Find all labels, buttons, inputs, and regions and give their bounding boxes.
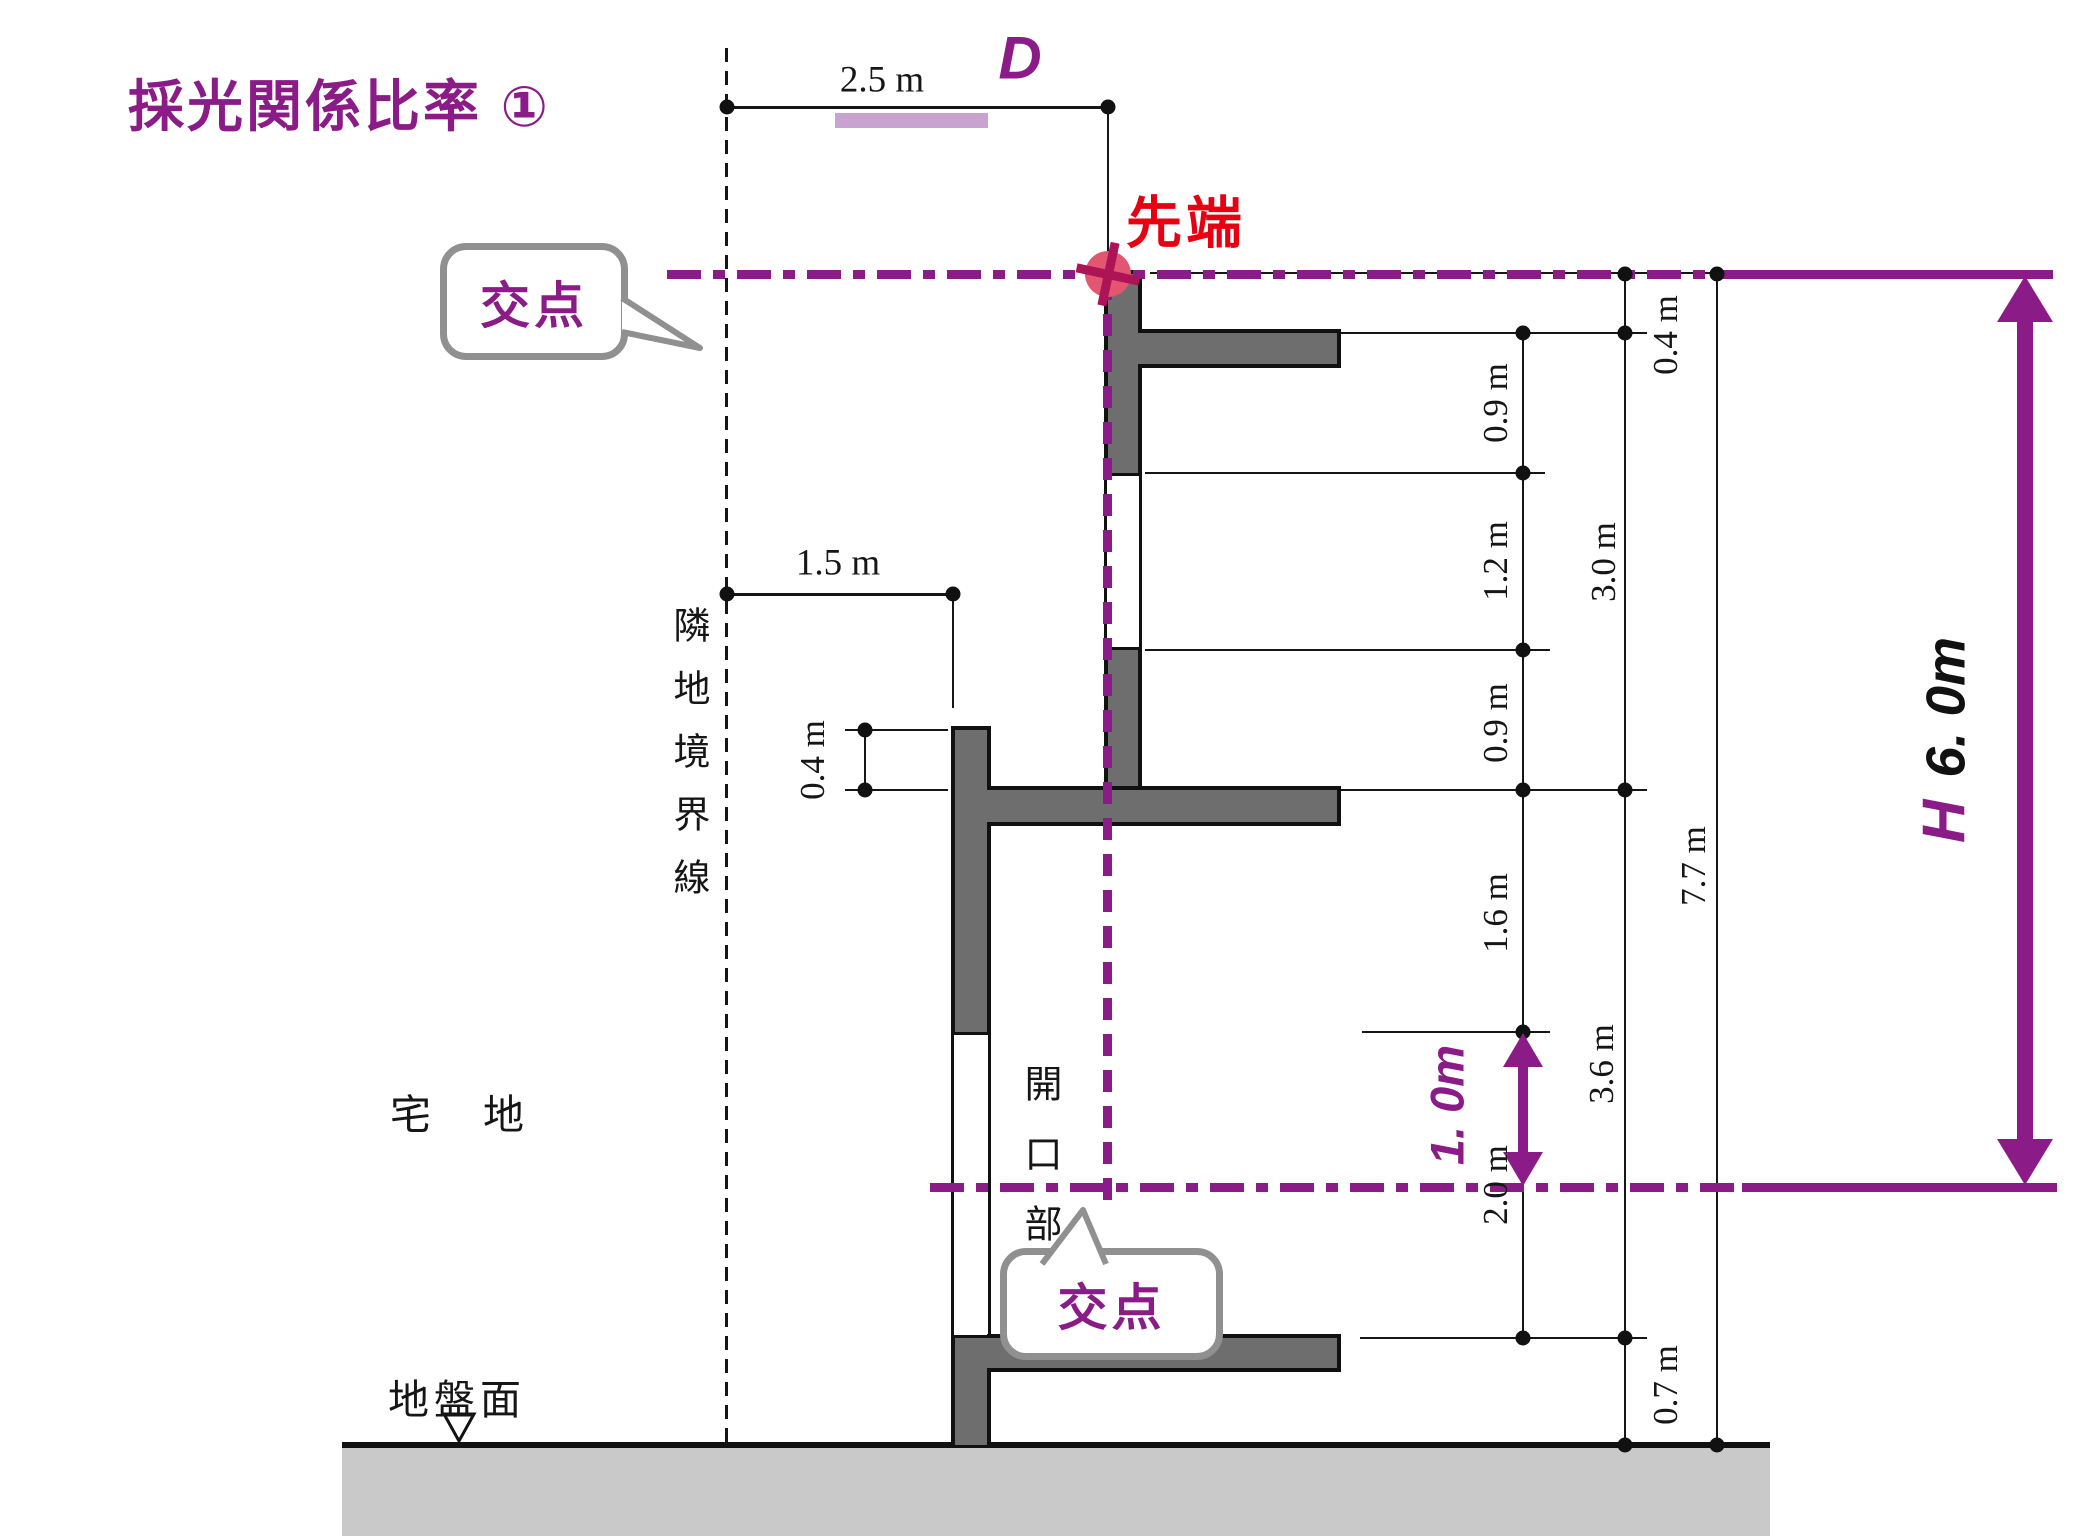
- page-title: 採光関係比率 ①: [128, 62, 551, 143]
- dim-label-7_7m: 7.7 m: [1674, 826, 1714, 906]
- ext-line-tip: [1107, 107, 1109, 252]
- dim-dot: [1618, 326, 1633, 341]
- dim-dot: [858, 723, 873, 738]
- dim-dot: [1710, 267, 1725, 282]
- daylight-ratio-diagram: 交点 交点 採光関係比率 ① D 2.5 m 1.5 m 0.4 m 先端 隣地…: [0, 0, 2100, 1540]
- vertical-reference-dashed-line: [1103, 278, 1112, 1206]
- dim-dot: [1516, 783, 1531, 798]
- dim-dot: [858, 783, 873, 798]
- dim-label-0_7m: 0.7 m: [1646, 1345, 1686, 1425]
- h-arrow-up-head: [1997, 276, 2053, 322]
- tip-label: 先端: [1126, 179, 1246, 260]
- dim-line-parapet: [864, 730, 866, 790]
- dim-dot: [720, 100, 735, 115]
- dim-dot: [720, 587, 735, 602]
- dim-line-2_5m: [727, 106, 1108, 109]
- h-value: 6. 0m: [1914, 637, 1978, 778]
- dim-label-1_5m: 1.5 m: [796, 542, 880, 585]
- roof-slab: [1138, 329, 1341, 368]
- dim-chain-outer: [1716, 274, 1718, 1445]
- dim-dot: [1516, 1331, 1531, 1346]
- dim-label-0_4m: 0.4 m: [1646, 295, 1686, 375]
- site-label: 宅地: [390, 1081, 576, 1141]
- ext-line-y790: [1341, 789, 1647, 791]
- dim-line-1_5m: [727, 593, 953, 596]
- ground-fill: [342, 1448, 1770, 1536]
- h-symbol: H: [1910, 800, 1979, 843]
- h-arrow-shaft: [2017, 312, 2033, 1150]
- ground-line: [342, 1442, 1770, 1448]
- ext-line-y650: [1145, 649, 1550, 651]
- window-height-label: 1. 0m: [1420, 1045, 1475, 1165]
- dim-label-parapet-0_4m: 0.4 m: [793, 720, 833, 800]
- second-floor-slab: [987, 786, 1341, 826]
- intersection-bubble-top-tail: [618, 292, 718, 362]
- boundary-label: 隣地境界線: [660, 606, 714, 921]
- dim-label-0_9m-a: 0.9 m: [1476, 363, 1516, 443]
- boundary-line: [725, 48, 728, 1445]
- dim-dot: [1618, 783, 1633, 798]
- intersection-bubble-bottom-tail: [1038, 1206, 1118, 1268]
- ext-line-y473: [1145, 472, 1545, 474]
- dim-label-2_5m: 2.5 m: [840, 59, 924, 102]
- ext-line-y1338: [1360, 1337, 1647, 1339]
- dim-dot: [1516, 326, 1531, 341]
- dim-label-1_2m: 1.2 m: [1476, 521, 1516, 601]
- dim-label-2_0m: 2.0 m: [1476, 1145, 1516, 1225]
- dim-label-1_6m: 1.6 m: [1476, 873, 1516, 953]
- dim-dot: [946, 587, 961, 602]
- highlight-bar: [835, 113, 988, 128]
- window-height-arrow-up-head: [1503, 1033, 1543, 1067]
- dim-dot: [1516, 466, 1531, 481]
- dim-dot: [1618, 1331, 1633, 1346]
- top-intersection-line: [667, 270, 1745, 279]
- h-arrow-down-head: [1997, 1139, 2053, 1185]
- ext-line-y333: [1341, 332, 1647, 334]
- intersection-bubble-top: 交点: [440, 243, 628, 360]
- h-dimension-label: H 6. 0m: [1910, 637, 1979, 843]
- window-height-arrow-shaft: [1518, 1060, 1528, 1160]
- ground-surface-label: 地盤面: [388, 1366, 526, 1426]
- dim-dot: [1516, 643, 1531, 658]
- dim-dot: [1618, 1438, 1633, 1453]
- dim-label-3_6m: 3.6 m: [1582, 1024, 1622, 1104]
- dim-dot: [1101, 100, 1116, 115]
- dim-label-0_9m-b: 0.9 m: [1476, 683, 1516, 763]
- ext-line-1_5m: [952, 598, 954, 708]
- dim-chain-middle: [1624, 274, 1626, 1445]
- dim-dot: [1710, 1438, 1725, 1453]
- dim-label-3_0m: 3.0 m: [1584, 522, 1624, 602]
- dim-dot: [1618, 267, 1633, 282]
- d-label: D: [998, 24, 1041, 93]
